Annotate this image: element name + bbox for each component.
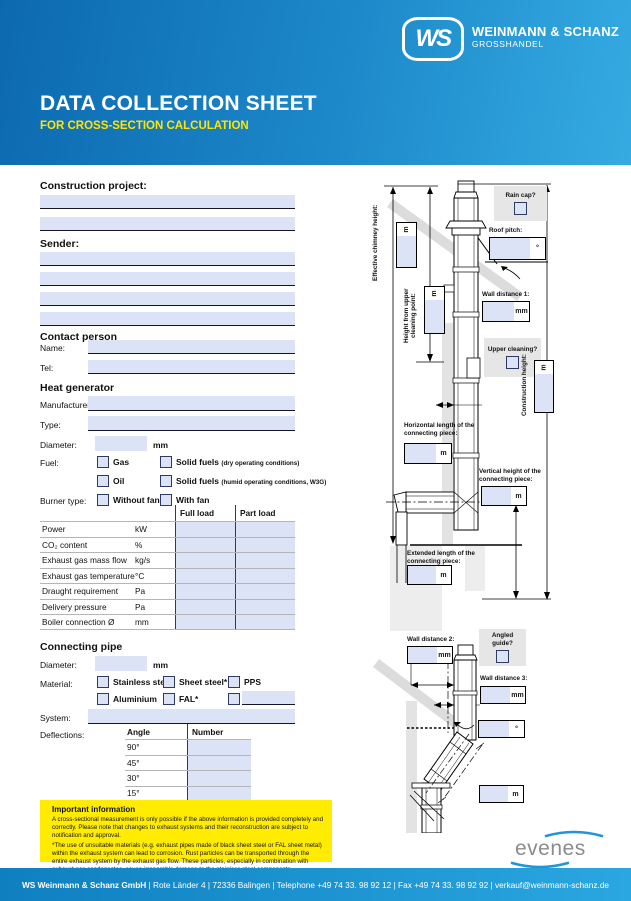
construction-project-input-2[interactable] [40,217,295,231]
header-banner: WS WEINMANN & SCHANZ GROSSHANDEL DATA CO… [0,0,631,165]
deflections-label: Deflections: [40,730,84,740]
data-collection-sheet-page: WS WEINMANN & SCHANZ GROSSHANDEL DATA CO… [0,0,631,901]
table-row-delivery: Delivery pressure Pa [40,599,295,615]
material-pps-checkbox[interactable] [228,676,240,688]
extended-length-label: Extended length of the connecting piece: [407,550,491,565]
manufacturer-label: Manufacturer: [40,400,92,410]
table-row-boiler-connection: Boiler connection Ø mm [40,614,295,630]
wall-distance-2-input[interactable] [408,647,437,663]
section-connecting-pipe: Connecting pipe [40,641,122,653]
unit-m: m [436,566,451,584]
row-label: Exhaust gas mass flow [40,555,135,565]
unit-m: m [511,487,526,505]
wall-distance-1-label: Wall distance 1: [482,291,529,299]
construction-height-label: Construction height: [521,348,528,423]
wall-distance-1-input[interactable] [483,302,514,321]
full-load-header: Full load [175,505,235,521]
row-unit: % [135,540,175,550]
deflection-row-15: 15° [125,786,251,802]
unit-mm: mm [437,647,452,663]
section-heat-generator: Heat generator [40,382,114,394]
fuel-gas-checkbox[interactable] [97,456,109,468]
sender-input-3[interactable] [40,292,295,306]
deflection-30-input[interactable] [187,771,251,786]
effective-chimney-height-input[interactable] [397,236,416,267]
heat-diameter-input[interactable] [95,436,147,451]
name-label: Name: [40,343,65,353]
fuel-oil-label: Oil [113,476,124,486]
power-part-load-input[interactable] [235,522,295,537]
extended-length-input[interactable] [408,566,436,584]
deflections-header: Angle Number [125,724,251,739]
draught-full-load-input[interactable] [175,584,235,599]
deflection-45-input[interactable] [187,756,251,771]
horizontal-length-input[interactable] [405,444,436,463]
angled-guide-label: Angled guide? [482,632,523,647]
deflection-90-input[interactable] [187,740,251,755]
angled-length-box: m [479,785,524,803]
unit-mm: mm [510,687,525,703]
type-input[interactable] [88,416,295,431]
fuel-gas-label: Gas [113,457,129,467]
draught-part-load-input[interactable] [235,584,295,599]
material-aluminium-label: Aluminium [113,694,157,704]
upper-cleaning-query: Upper cleaning? [484,338,541,377]
row-unit: Pa [135,602,175,612]
ws-logo-text: WS [416,25,451,53]
manufacturer-input[interactable] [88,396,295,411]
page-subtitle: FOR CROSS-SECTION CALCULATION [40,120,249,132]
unit-m: m [508,786,523,802]
angled-guide-checkbox[interactable] [496,650,509,663]
deflection-row-90: 90° [125,739,251,755]
deflection-row-45: 45° [125,755,251,771]
table-row-draught: Draught requirement Pa [40,583,295,599]
deflection-row-30: 30° [125,770,251,786]
wall-distance-2-label: Wall distance 2: [407,636,454,644]
angle-label: 15° [125,788,187,798]
guide-angle-box: ° [478,720,525,738]
unit-m: m [400,220,413,239]
material-pps-label: PPS [244,677,261,687]
fuel-solid-humid-label: Solid fuels (humid operating conditions,… [176,476,326,486]
material-other-input[interactable] [242,691,295,705]
row-label: Delivery pressure [40,602,135,612]
delivery-part-load-input[interactable] [235,600,295,615]
brand-name: WEINMANN & SCHANZ [472,24,619,39]
material-sheet-steel-checkbox[interactable] [163,676,175,688]
mass-flow-full-load-input[interactable] [175,553,235,568]
section-sender: Sender: [40,238,79,250]
important-info-title: Important information [52,805,324,814]
number-header: Number [187,724,251,739]
angled-length-input[interactable] [480,786,508,802]
evenes-logo-text: evenes [515,837,586,861]
part-load-header: Part load [235,505,295,521]
fuel-label: Fuel: [40,458,59,468]
fuel-solid-humid-text: Solid fuels [176,476,219,486]
angle-label: 30° [125,773,187,783]
temperature-part-load-input[interactable] [235,569,295,584]
unit-mm: mm [514,302,529,321]
row-label: CO₂ content [40,540,135,550]
footer-bar: WS Weinmann & Schanz GmbH | Rote Länder … [0,868,631,901]
brand-subtitle: GROSSHANDEL [472,39,619,49]
fuel-solid-dry-note: (dry operating conditions) [221,460,299,467]
table-row-mass-flow: Exhaust gas mass flow kg/s [40,552,295,568]
row-unit: kW [135,524,175,534]
tel-label: Tel: [40,363,53,373]
row-label: Power [40,524,135,534]
type-label: Type: [40,420,61,430]
wall-distance-3-box: mm [480,686,526,704]
angle-label: 90° [125,742,187,752]
deflections-table: Angle Number 90° 45° 30° 15° [125,724,251,801]
footer-company: WS Weinmann & Schanz GmbH [22,880,146,890]
row-unit: mm [135,617,175,627]
important-info-paragraph-1: A cross-sectional measurement is only po… [52,816,324,840]
boiler-full-load-input[interactable] [175,615,235,629]
row-label: Draught requirement [40,586,135,596]
material-sheet-steel-label: Sheet steel* [179,677,227,687]
table-row-temperature: Exhaust gas temperature °C [40,568,295,584]
evenes-logo: evenes [498,828,622,872]
burner-without-fan-label: Without fan [113,495,160,505]
name-input[interactable] [88,340,295,354]
mass-flow-part-load-input[interactable] [235,553,295,568]
angled-guide-query: Angled guide? [479,629,526,666]
burner-with-fan-label: With fan [176,495,209,505]
wall-distance-3-input[interactable] [481,687,510,703]
table-row-co2: CO₂ content % [40,537,295,553]
horizontal-length-box: m [404,443,452,464]
upper-cleaning-checkbox[interactable] [506,356,519,369]
unit-deg: ° [530,238,545,259]
power-full-load-input[interactable] [175,522,235,537]
fuel-solid-humid-note: (humid operating conditions, W3G) [221,479,326,486]
pipe-diameter-unit: mm [153,660,168,670]
roof-pitch-label: Roof pitch: [489,227,522,235]
upper-cleaning-label: Upper cleaning? [488,346,537,354]
co2-part-load-input[interactable] [235,538,295,553]
load-table-header: Full load Part load [40,505,295,521]
heat-diameter-unit: mm [153,440,168,450]
angle-header: Angle [125,727,187,737]
wall-distance-2-box: mm [407,646,453,664]
tel-input[interactable] [88,360,295,374]
pipe-diameter-input[interactable] [95,656,147,671]
load-table: Full load Part load Power kW CO₂ content… [40,505,295,630]
material-stainless-checkbox[interactable] [97,676,109,688]
deflection-15-input[interactable] [187,787,251,801]
vertical-height-input[interactable] [482,487,511,505]
construction-height-box: m [534,360,554,413]
construction-height-input[interactable] [535,374,553,412]
effective-chimney-height-label: Effective chimney height: [372,203,379,283]
wall-distance-1-box: mm [482,301,530,322]
section-construction-project: Construction project: [40,180,147,192]
sender-input-2[interactable] [40,272,295,286]
construction-project-input-1[interactable] [40,195,295,209]
system-label: System: [40,713,71,723]
ws-logo-icon: WS [402,17,464,61]
boiler-part-load-input[interactable] [235,615,295,629]
row-unit: Pa [135,586,175,596]
unit-m: m [428,284,441,303]
rain-cap-query: Rain cap? [494,186,547,221]
material-fal-label: FAL* [179,694,198,704]
material-fal-checkbox[interactable] [163,693,175,705]
material-other-checkbox[interactable] [228,693,240,705]
rain-cap-checkbox[interactable] [514,202,527,215]
fuel-oil-checkbox[interactable] [97,475,109,487]
row-unit: kg/s [135,555,175,565]
fuel-solid-dry-text: Solid fuels [176,457,219,467]
extended-length-box: m [407,565,452,585]
row-label: Exhaust gas temperature [40,571,135,581]
row-label: Boiler connection Ø [40,617,135,627]
table-row-power: Power kW [40,521,295,537]
vertical-height-box: m [481,486,527,506]
angle-label: 45° [125,758,187,768]
effective-chimney-height-box: m [396,222,417,268]
rain-cap-label: Rain cap? [505,192,535,200]
co2-full-load-input[interactable] [175,538,235,553]
pipe-diameter-label: Diameter: [40,660,77,670]
system-input[interactable] [88,709,295,724]
sender-input-4[interactable] [40,312,295,326]
row-unit: °C [135,571,175,581]
horizontal-length-label: Horizontal length of the connecting piec… [404,422,494,437]
unit-deg: ° [509,721,524,737]
company-logo: WS WEINMANN & SCHANZ GROSSHANDEL [402,17,619,61]
important-information-box: Important information A cross-sectional … [40,800,332,862]
vertical-height-label: Vertical height of the connecting piece: [479,468,567,483]
height-upper-cleaning-label: Height from upper cleaning point: [403,286,420,346]
guide-angle-input[interactable] [479,721,509,737]
height-upper-cleaning-input[interactable] [425,300,444,333]
wall-distance-3-label: Wall distance 3: [480,675,527,683]
roof-pitch-box: ° [489,237,546,260]
material-aluminium-checkbox[interactable] [97,693,109,705]
material-label: Material: [40,679,73,689]
page-title: DATA COLLECTION SHEET [40,92,317,116]
delivery-full-load-input[interactable] [175,600,235,615]
roof-pitch-input[interactable] [490,238,530,259]
heat-diameter-label: Diameter: [40,440,77,450]
fuel-solid-dry-label: Solid fuels (dry operating conditions) [176,457,299,467]
unit-m: m [538,359,551,377]
fuel-solid-dry-checkbox[interactable] [160,456,172,468]
temperature-full-load-input[interactable] [175,569,235,584]
fuel-solid-humid-checkbox[interactable] [160,475,172,487]
sender-input-1[interactable] [40,252,295,266]
footer-contact-info: | Rote Länder 4 | 72336 Balingen | Telep… [146,880,609,890]
unit-m: m [436,444,451,463]
height-upper-cleaning-box: m [424,286,445,334]
